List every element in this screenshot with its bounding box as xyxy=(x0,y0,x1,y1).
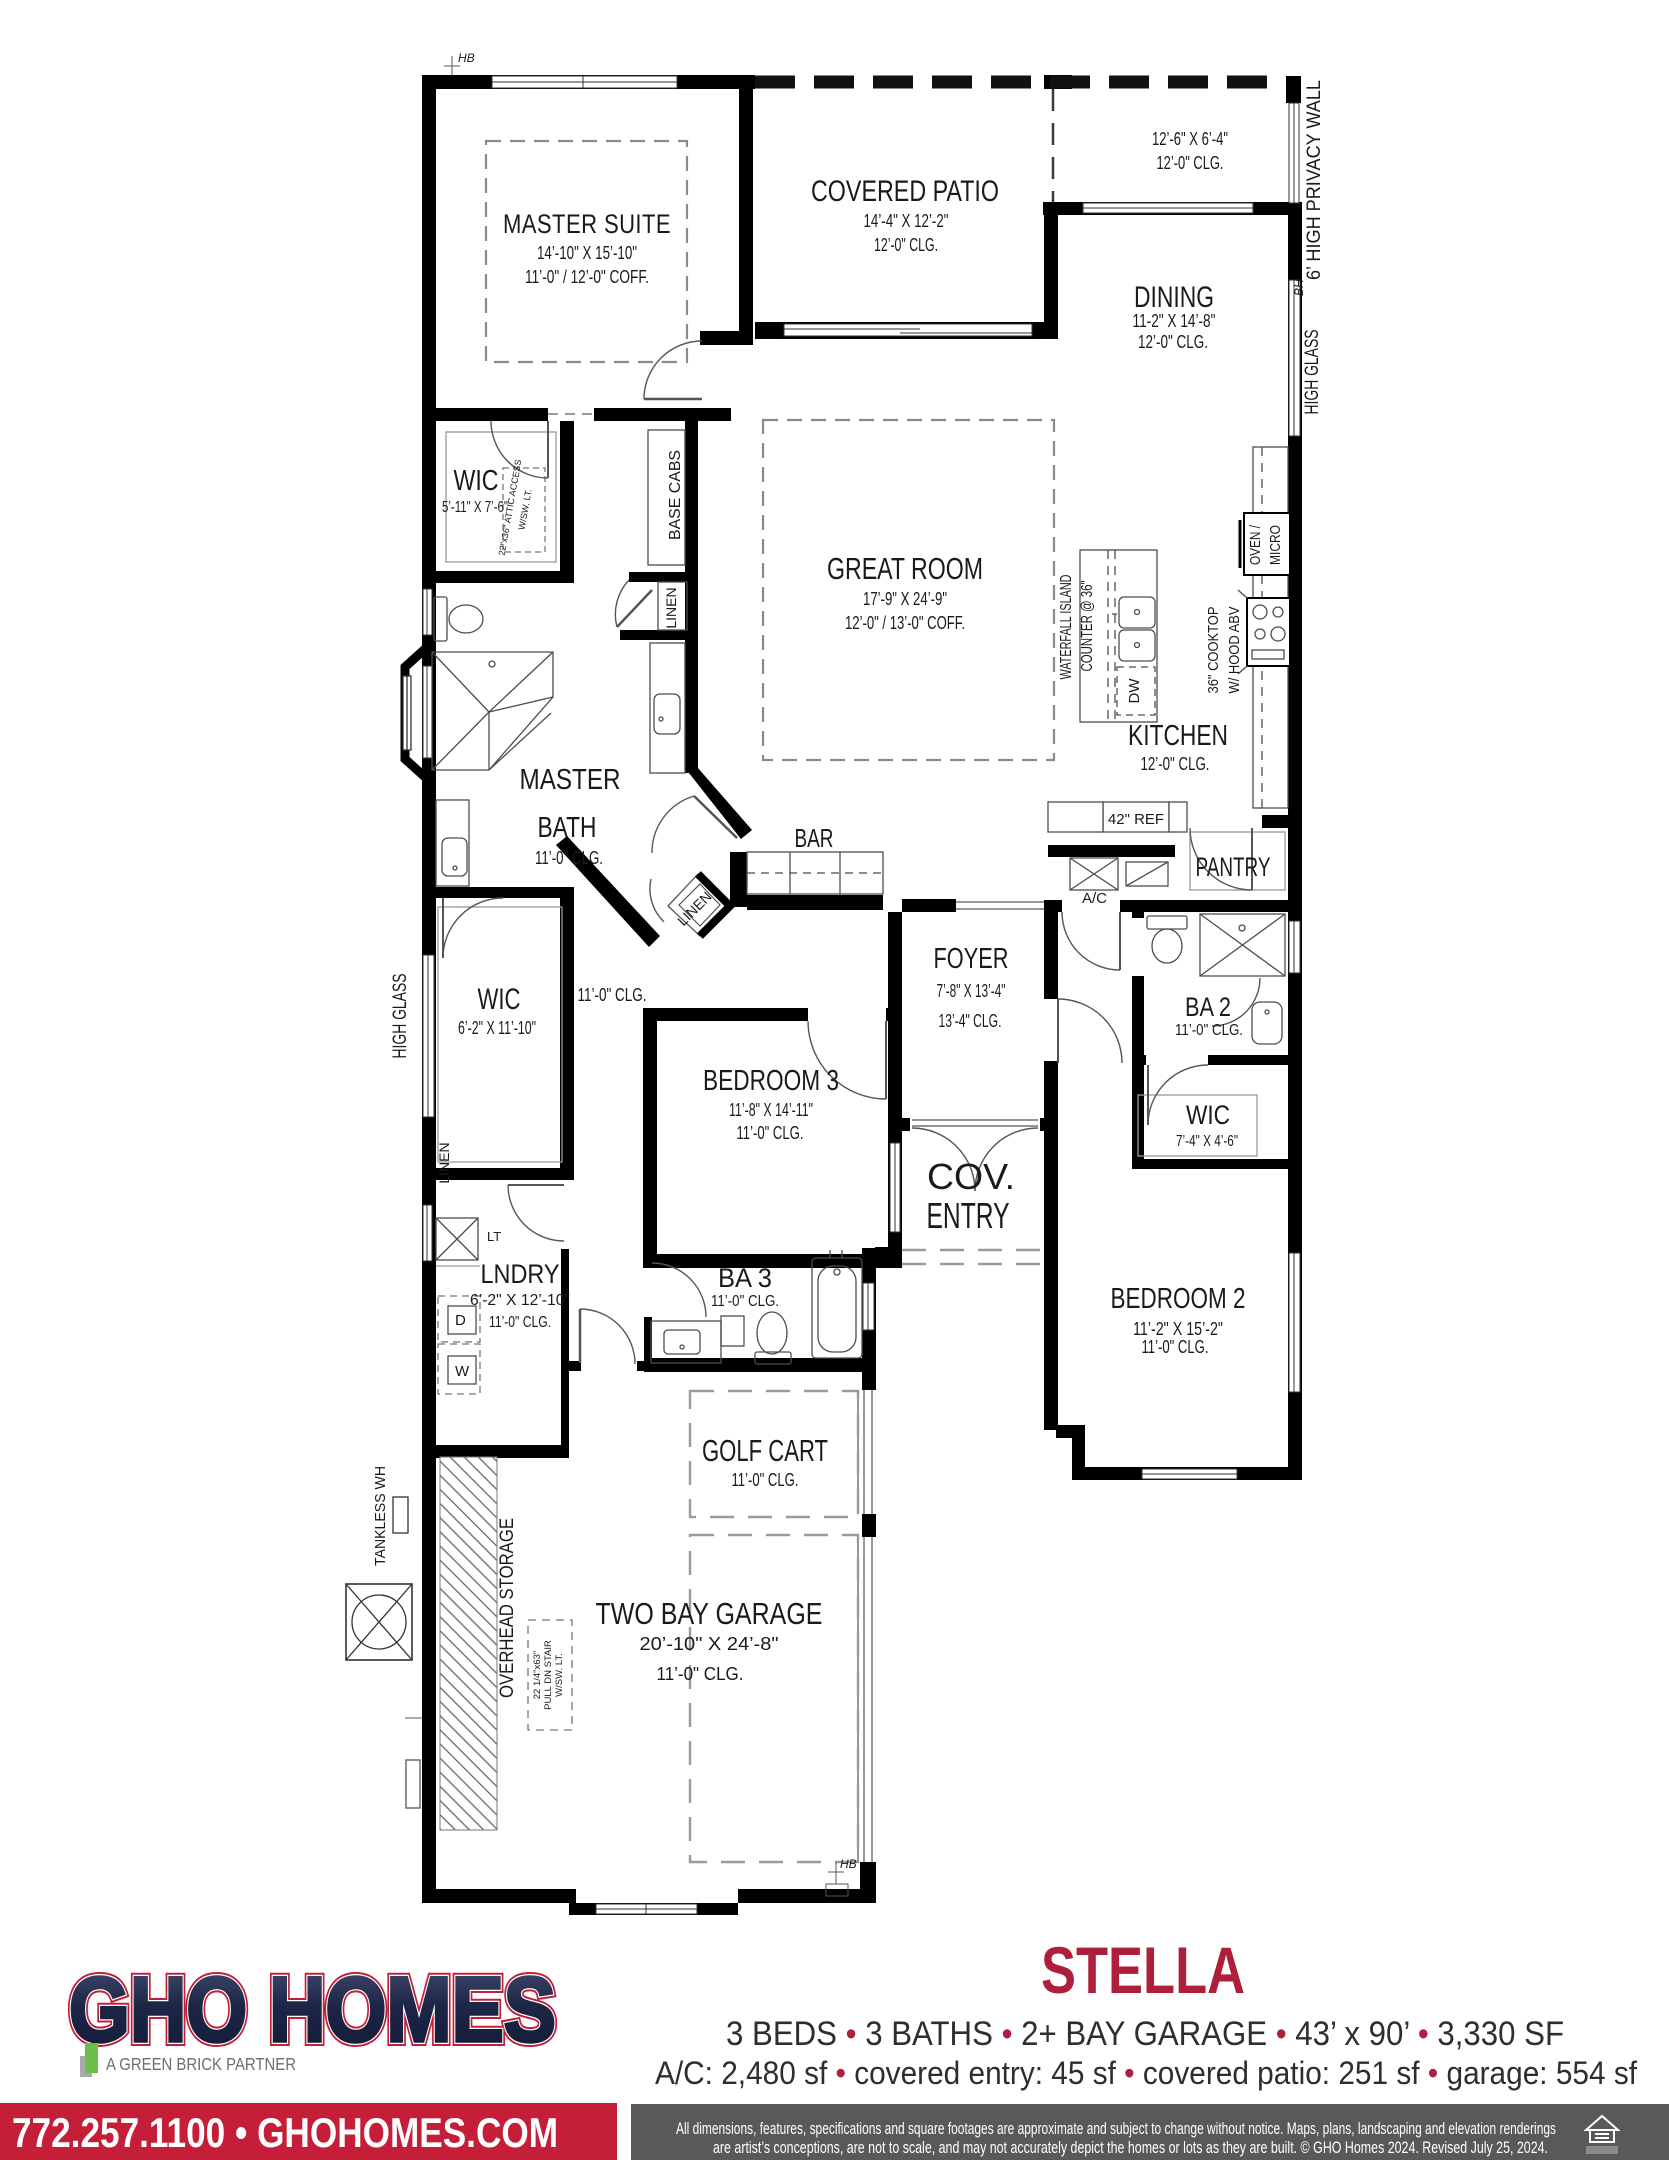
svg-text:BEDROOM 2: BEDROOM 2 xyxy=(1111,1283,1246,1315)
svg-text:BAR: BAR xyxy=(795,823,834,853)
svg-text:12’-0" CLG.: 12’-0" CLG. xyxy=(1141,754,1210,774)
svg-text:11’-0" / 12’-0" COFF.: 11’-0" / 12’-0" COFF. xyxy=(525,267,649,287)
svg-text:OVEN /: OVEN / xyxy=(1247,524,1264,565)
svg-text:All dimensions, features, spec: All dimensions, features, specifications… xyxy=(676,2119,1556,2138)
svg-text:HB: HB xyxy=(458,51,475,65)
svg-text:FOYER: FOYER xyxy=(934,943,1009,975)
svg-text:14’-10" X 15’-10": 14’-10" X 15’-10" xyxy=(537,243,637,263)
svg-text:13’-4" CLG.: 13’-4" CLG. xyxy=(939,1011,1002,1031)
svg-text:MICRO: MICRO xyxy=(1267,525,1284,565)
svg-text:W/SW. LT.: W/SW. LT. xyxy=(554,1653,565,1697)
svg-text:11’-0" CLG.: 11’-0" CLG. xyxy=(578,985,647,1005)
svg-text:11’-0" CLG.: 11’-0" CLG. xyxy=(1142,1337,1209,1357)
svg-text:36" COOKTOP: 36" COOKTOP xyxy=(1205,607,1222,694)
svg-text:are artist’s conceptions, are: are artist’s conceptions, are not to sca… xyxy=(713,2138,1548,2157)
svg-text:DINING: DINING xyxy=(1134,281,1214,314)
svg-text:11’-8" X 14’-11": 11’-8" X 14’-11" xyxy=(729,1100,813,1120)
svg-text:BA 2: BA 2 xyxy=(1185,992,1231,1022)
svg-text:PULL DN STAIR: PULL DN STAIR xyxy=(543,1640,554,1710)
svg-text:TWO BAY GARAGE: TWO BAY GARAGE xyxy=(596,1596,823,1631)
svg-text:WIC: WIC xyxy=(454,465,499,497)
svg-text:6’-2" X 11’-10": 6’-2" X 11’-10" xyxy=(458,1018,536,1038)
svg-text:BH: BH xyxy=(1292,279,1306,296)
svg-text:WATERFALL ISLAND: WATERFALL ISLAND xyxy=(1058,575,1075,680)
svg-text:22 1/4"x63": 22 1/4"x63" xyxy=(532,1651,543,1699)
svg-text:A/C: A/C xyxy=(1082,890,1107,907)
svg-text:COV.: COV. xyxy=(927,1156,1015,1197)
svg-text:LT: LT xyxy=(487,1229,501,1244)
svg-text:11’-0" CLG.: 11’-0" CLG. xyxy=(657,1664,744,1684)
svg-text:11’-0" CLG.: 11’-0" CLG. xyxy=(732,1470,799,1490)
svg-text:772.257.1100 • GHOHOMES.COM: 772.257.1100 • GHOHOMES.COM xyxy=(12,2109,558,2156)
svg-text:TANKLESS WH: TANKLESS WH xyxy=(372,1466,389,1566)
svg-text:A GREEN BRICK PARTNER: A GREEN BRICK PARTNER xyxy=(106,2054,296,2074)
svg-text:6’-2" X 12’-10": 6’-2" X 12’-10" xyxy=(470,1292,570,1309)
svg-text:6’ HIGH PRIVACY WALL: 6’ HIGH PRIVACY WALL xyxy=(1304,80,1325,280)
svg-text:A/C: 2,480 sf • covered entry:: A/C: 2,480 sf • covered entry: 45 sf • c… xyxy=(655,2055,1637,2091)
svg-text:HB: HB xyxy=(840,1857,857,1871)
svg-text:12’-0" CLG.: 12’-0" CLG. xyxy=(1138,332,1208,352)
svg-text:HIGH GLASS: HIGH GLASS xyxy=(390,974,411,1059)
svg-text:11’-0" CLG.: 11’-0" CLG. xyxy=(737,1123,804,1143)
svg-text:LNDRY: LNDRY xyxy=(481,1259,560,1289)
svg-text:5’-11" X 7’-6": 5’-11" X 7’-6" xyxy=(442,499,508,516)
svg-text:11-2" X 14’-8": 11-2" X 14’-8" xyxy=(1133,311,1216,331)
svg-text:12’-6" X 6’-4": 12’-6" X 6’-4" xyxy=(1152,129,1228,149)
svg-text:PANTRY: PANTRY xyxy=(1196,852,1271,882)
svg-text:3 BEDS • 3 BATHS • 2+ BAY GARA: 3 BEDS • 3 BATHS • 2+ BAY GARAGE • 43’ x… xyxy=(726,2015,1564,2053)
svg-text:11’-2" X 15’-2": 11’-2" X 15’-2" xyxy=(1133,1319,1223,1339)
svg-text:7’-4" X 4’-6": 7’-4" X 4’-6" xyxy=(1176,1133,1238,1150)
svg-text:17’-9" X 24’-9": 17’-9" X 24’-9" xyxy=(863,589,947,609)
svg-text:BATH: BATH xyxy=(538,812,597,844)
svg-text:HIGH GLASS: HIGH GLASS xyxy=(1302,330,1323,415)
svg-text:MASTER SUITE: MASTER SUITE xyxy=(503,209,671,239)
svg-text:W/ HOOD ABV: W/ HOOD ABV xyxy=(1226,607,1243,694)
svg-text:ENTRY: ENTRY xyxy=(927,1195,1010,1236)
svg-text:11’-0" CLG.: 11’-0" CLG. xyxy=(1175,1022,1243,1039)
svg-text:14’-4" X 12’-2": 14’-4" X 12’-2" xyxy=(864,211,949,231)
svg-text:11’-0" CLG.: 11’-0" CLG. xyxy=(711,1293,779,1310)
svg-text:LINEN: LINEN xyxy=(436,1142,452,1183)
svg-text:20’-10" X 24’-8": 20’-10" X 24’-8" xyxy=(640,1634,779,1654)
svg-text:BEDROOM 3: BEDROOM 3 xyxy=(703,1065,839,1097)
svg-text:DW: DW xyxy=(1126,678,1143,704)
svg-text:LINEN: LINEN xyxy=(663,587,679,628)
svg-text:11’-0" CLG.: 11’-0" CLG. xyxy=(489,1314,551,1331)
svg-text:WIC: WIC xyxy=(1186,1100,1230,1130)
svg-text:42" REF: 42" REF xyxy=(1108,811,1164,828)
svg-text:BASE CABS: BASE CABS xyxy=(667,450,684,540)
svg-text:12’-0" CLG.: 12’-0" CLG. xyxy=(874,235,938,255)
svg-text:12’-0" CLG.: 12’-0" CLG. xyxy=(1157,153,1224,173)
svg-text:GREAT ROOM: GREAT ROOM xyxy=(827,551,983,586)
svg-text:COVERED PATIO: COVERED PATIO xyxy=(811,175,999,208)
svg-text:STELLA: STELLA xyxy=(1041,1933,1245,2007)
svg-text:12’-0" / 13’-0" COFF.: 12’-0" / 13’-0" COFF. xyxy=(845,613,965,633)
svg-text:WIC: WIC xyxy=(478,983,521,1016)
svg-text:7’-8" X 13’-4": 7’-8" X 13’-4" xyxy=(937,981,1006,1001)
svg-text:GOLF CART: GOLF CART xyxy=(702,1433,828,1468)
svg-text:11’-0" CLG.: 11’-0" CLG. xyxy=(535,848,603,868)
svg-text:GHO HOMES: GHO HOMES xyxy=(69,1959,556,2061)
svg-text:OVERHEAD STORAGE: OVERHEAD STORAGE xyxy=(497,1518,518,1698)
svg-text:D: D xyxy=(455,1312,466,1329)
svg-text:KITCHEN: KITCHEN xyxy=(1128,720,1228,752)
svg-text:BA 3: BA 3 xyxy=(718,1263,772,1293)
svg-text:MASTER: MASTER xyxy=(520,764,621,796)
svg-text:COUNTER @ 36": COUNTER @ 36" xyxy=(1079,581,1096,672)
svg-text:W: W xyxy=(455,1363,470,1380)
